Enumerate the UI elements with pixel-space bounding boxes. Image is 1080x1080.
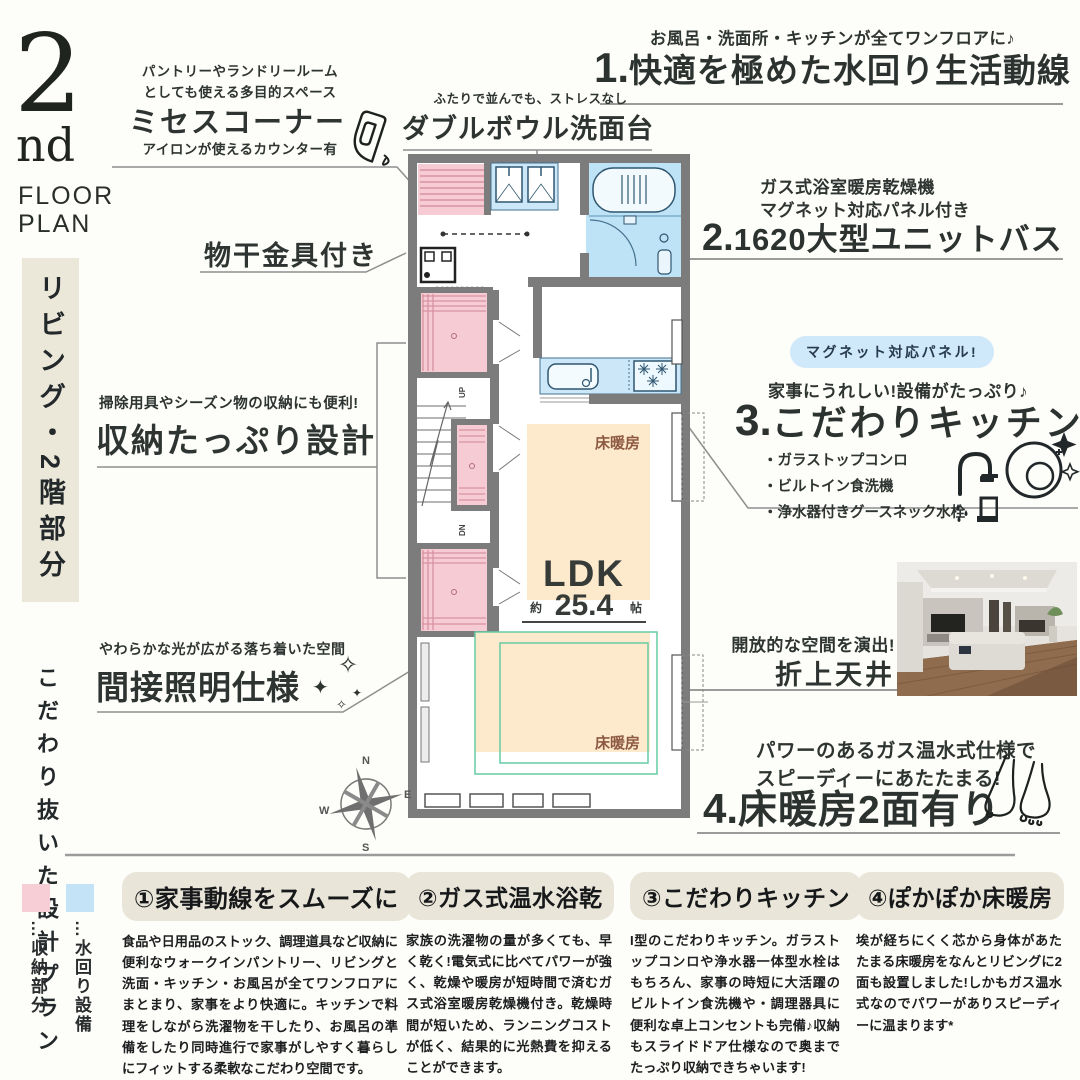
floor-plan: UP DN — [408, 154, 690, 818]
faucet-icon — [950, 446, 998, 528]
logo-nd: nd — [16, 122, 75, 168]
iron-icon — [340, 103, 402, 167]
sparkle-icon: ✦ — [352, 686, 362, 700]
mrs-corner-title: ミセスコーナー — [100, 99, 375, 141]
dish-sparkle-icon — [998, 422, 1080, 506]
feature4-title: 4.床暖房2面有り — [703, 779, 1001, 835]
plan-slat — [421, 643, 429, 701]
svg-text:25.4: 25.4 — [555, 589, 614, 622]
double-bowl-title: ダブルボウル洗面台 — [398, 107, 658, 146]
legend-water-swatch — [66, 884, 94, 912]
logo-number: 2 — [14, 26, 83, 123]
logo-plan: PLAN — [18, 210, 91, 239]
ceiling-title: 折上天井 — [695, 653, 895, 692]
mrs-corner-note-top: パントリーやランドリールームとしても使える多目的スペース — [110, 62, 370, 104]
column-kitchen: ③こだわりキッチン I型のこだわりキッチン。ガラストップコンロや浄水器一体型水栓… — [630, 872, 840, 1078]
plan-up-label: UP — [458, 386, 467, 398]
plan-closet-lower — [418, 546, 490, 634]
sidebar-banner: リビング・2階部分 — [22, 258, 79, 602]
laundry-bracket-title: 物干金具付き — [204, 234, 378, 273]
legend-water-label: …水回り設備 — [66, 920, 94, 1080]
svg-text:帖: 帖 — [630, 600, 642, 615]
storage-title: 収納たっぷり設計 — [96, 414, 376, 462]
bullet-item: ・ビルトイン食洗機 — [763, 474, 965, 500]
sparkle-icon: ✧ — [338, 651, 358, 680]
lighting-title: 間接照明仕様 — [96, 661, 300, 709]
feet-icon — [976, 750, 1056, 832]
compass-s: S — [362, 842, 369, 852]
svg-text:LDK: LDK — [543, 553, 625, 594]
column-housework-flow: ①家事動線をスムーズに 食品や日用品のストック、調理道具など収納に便利なウォーク… — [122, 872, 398, 1079]
plan-dn-label: DN — [458, 524, 467, 536]
svg-text:約: 約 — [530, 600, 542, 615]
column-body: 埃が経ちにくく芯から身体があたたまる床暖房をなんとリビングに2面も設置しました!… — [856, 930, 1062, 1036]
sparkle-icon: ✦ — [312, 675, 329, 700]
column-body: 家族の洗濯物の量が多くても、早く乾く!電気式に比べてパワーが強く、乾燥や暖房が短… — [406, 930, 612, 1078]
sparkle-icon: ✧ — [336, 697, 347, 713]
column-body: I型のこだわりキッチン。ガラストップコンロや浄水器一体型水栓はもちろん、家事の時… — [630, 930, 840, 1078]
plan-slat — [421, 707, 429, 762]
column-floor-heating: ④ぽかぽか床暖房 埃が経ちにくく芯から身体があたたまる床暖房をなんとリビングに2… — [856, 872, 1062, 1036]
plan-cabinet — [421, 248, 455, 282]
plan-closet-small — [454, 422, 490, 508]
column-gas-dryer: ②ガス式温水浴乾 家族の洗濯物の量が多くても、早く乾く!電気式に比べてパワーが強… — [406, 872, 612, 1078]
lighting-note: やわらかな光が広がる落ち着いた空間 — [99, 639, 346, 661]
feature3-bullets: ・ガラストップコンロ ・ビルトイン食洗機 ・浄水器付きグースネック水栓 — [763, 448, 965, 526]
plan-double-bowl-sink — [491, 163, 558, 210]
compass-w: W — [319, 805, 330, 817]
flyer-canvas: 2 nd FLOOR PLAN リビング・2階部分 こだわり抜いた設計プラン パ… — [0, 0, 1080, 1080]
compass-n: N — [362, 755, 370, 767]
storage-note: 掃除用具やシーズン物の収納にも便利! — [99, 393, 359, 415]
plan-wall — [533, 287, 542, 358]
column-title: ①家事動線をスムーズに — [122, 872, 411, 921]
plan-wall — [528, 277, 686, 287]
floor-heating-label: 床暖房 — [595, 734, 640, 752]
column-title: ④ぽかぽか床暖房 — [856, 872, 1064, 920]
legend-storage-label: …収納部分 — [22, 920, 50, 1070]
bullet-item: ・ガラストップコンロ — [763, 448, 965, 474]
feature1-title: 1.快適を極めた水回り生活動線 — [600, 44, 1065, 92]
mrs-corner-note-bottom: アイロンが使えるカウンター有 — [110, 140, 370, 161]
feature2-note1: ガス式浴室暖房乾燥機 — [760, 173, 935, 198]
column-title: ②ガス式温水浴乾 — [406, 872, 614, 920]
living-room-photo — [897, 562, 1077, 696]
magnet-panel-badge: マグネット対応パネル! — [790, 336, 994, 368]
feature2-title: 2.1620大型ユニットバス — [702, 214, 1063, 260]
column-body: 食品や日用品のストック、調理道具など収納に便利なウォークインパントリー、リビング… — [122, 931, 398, 1079]
plan-unit-bath — [580, 163, 681, 287]
compass-icon: N E S W — [318, 752, 414, 852]
floor-heating-label: 床暖房 — [595, 434, 640, 452]
compass-e: E — [404, 789, 411, 801]
legend-storage-swatch — [22, 884, 50, 912]
bullet-item: ・浄水器付きグースネック水栓 — [763, 500, 965, 526]
logo-floor: FLOOR — [18, 182, 114, 211]
column-title: ③こだわりキッチン — [630, 872, 862, 920]
plan-closet-walkin — [418, 290, 490, 375]
plan-mrs-counter — [418, 163, 491, 215]
